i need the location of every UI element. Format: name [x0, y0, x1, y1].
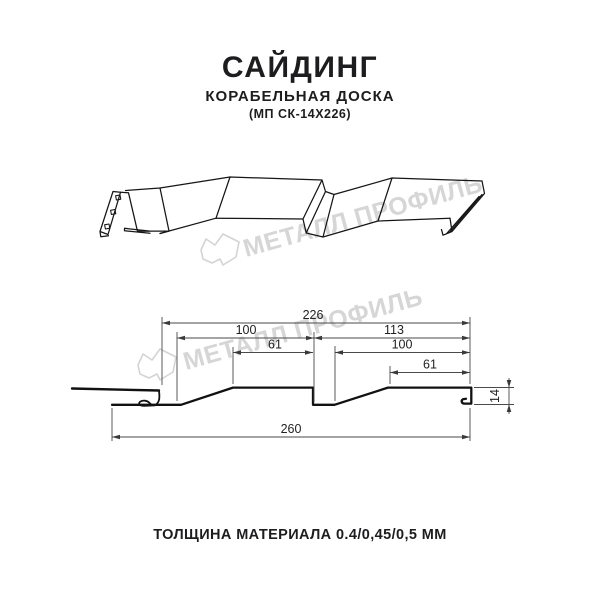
watermark-lower: МЕТАЛЛ ПРОФИЛЬ	[138, 283, 426, 380]
dim-label-100-left: 100	[236, 323, 257, 337]
metal-profil-logo-icon	[138, 349, 176, 380]
sketch-nail-flange	[100, 192, 121, 237]
sketch-lock-fold	[121, 188, 170, 234]
section-lip-line	[72, 389, 159, 391]
watermark-upper: МЕТАЛЛ ПРОФИЛЬ	[201, 170, 486, 265]
dim-label-100-right: 100	[392, 338, 413, 352]
watermark-brand-text: МЕТАЛЛ ПРОФИЛЬ	[240, 170, 486, 263]
dim-label-226: 226	[303, 308, 324, 322]
metal-profil-logo-icon	[201, 234, 239, 265]
material-thickness-note: ТОЛЩИНА МАТЕРИАЛА 0.4/0,45/0,5 ММ	[0, 527, 600, 543]
section-sheet-line	[112, 388, 471, 405]
section-lock-curl	[139, 391, 159, 406]
dim-label-113: 113	[384, 323, 404, 337]
dim-label-260: 260	[281, 422, 302, 436]
flange-nail-holes	[105, 195, 121, 229]
dimension-arrowheads	[112, 321, 511, 440]
technical-drawing-canvas: МЕТАЛЛ ПРОФИЛЬ МЕТАЛЛ ПРОФИЛЬ	[0, 0, 600, 600]
dim-label-61-left: 61	[268, 338, 282, 352]
product-drawing-page: САЙДИНГ КОРАБЕЛЬНАЯ ДОСКА (МП СК-14Х226)…	[0, 0, 600, 600]
dim-label-61-right: 61	[423, 358, 437, 372]
cross-section-profile	[72, 388, 471, 406]
dim-label-14: 14	[488, 389, 502, 403]
